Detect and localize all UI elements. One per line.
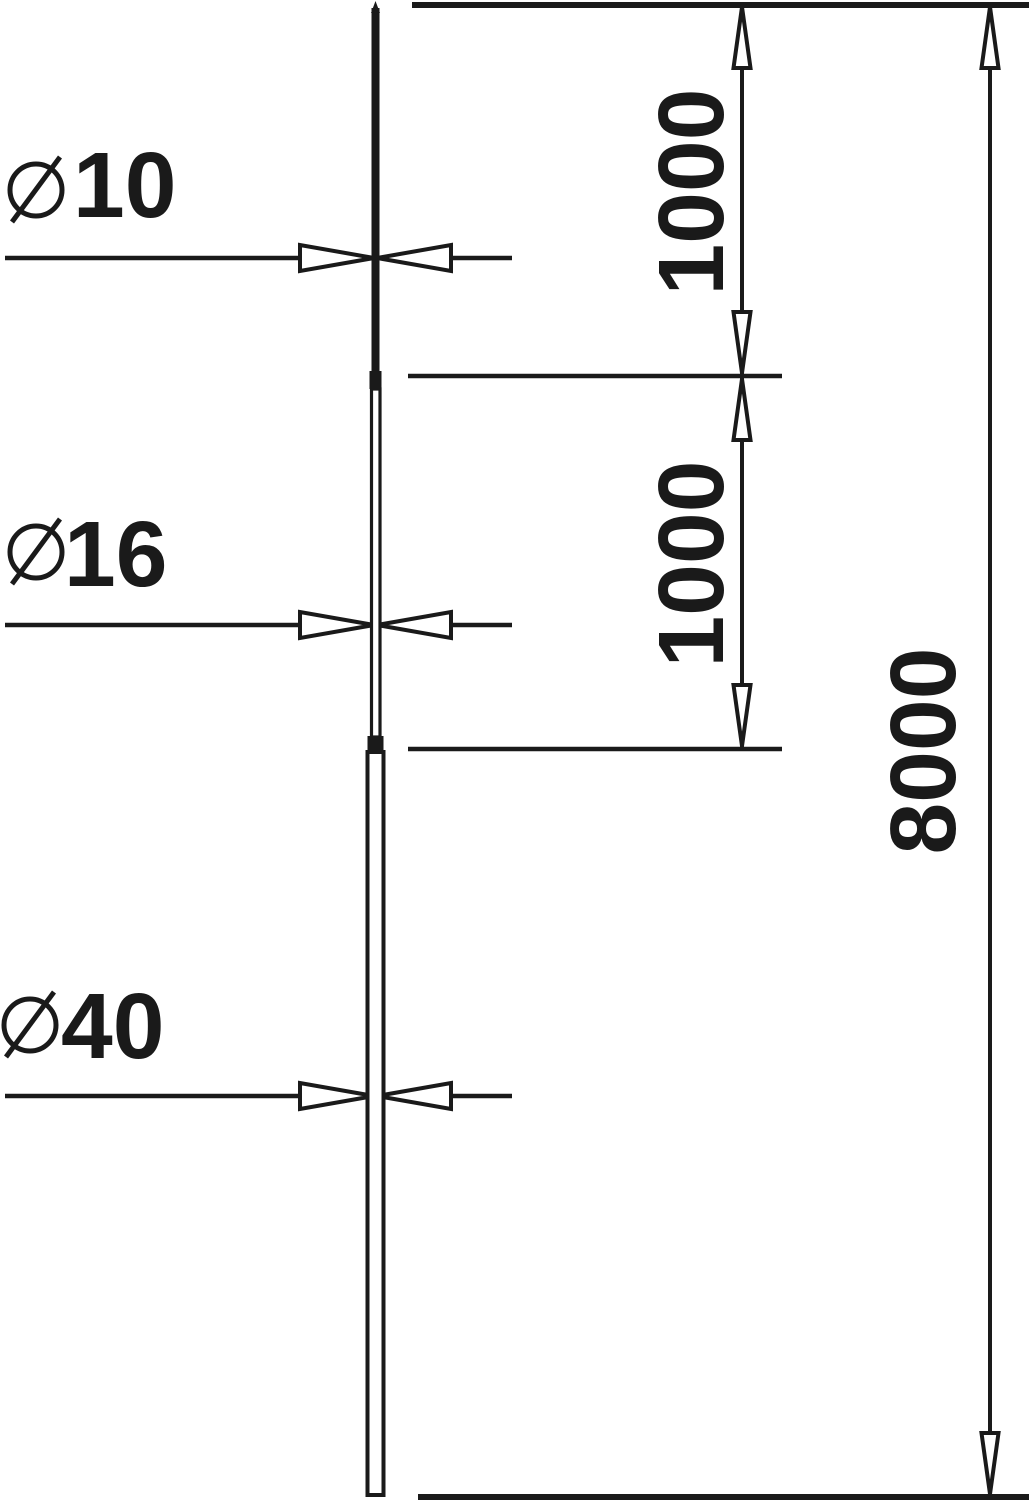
dia16-symbol-icon bbox=[10, 519, 62, 584]
dia40-arrow-left-icon bbox=[377, 1083, 451, 1109]
dia10-callout: 10 bbox=[5, 133, 512, 271]
dia10-arrow-left-icon bbox=[377, 245, 451, 271]
rod-section-dia40 bbox=[368, 752, 384, 1495]
dia16-callout: 16 bbox=[5, 502, 512, 638]
dia40-arrow-right-icon bbox=[300, 1083, 374, 1109]
dia40-value: 40 bbox=[61, 974, 164, 1078]
segment1-arrow-up-icon bbox=[734, 7, 751, 68]
rod-coupler-lower bbox=[368, 736, 384, 752]
rod bbox=[368, 1, 384, 1495]
drawing-stage: 10 16 40 1000 1000 8000 bbox=[0, 0, 1029, 1500]
dia40-symbol-icon bbox=[4, 992, 56, 1057]
dia10-value: 10 bbox=[73, 133, 176, 237]
total-arrow-down-icon bbox=[982, 1433, 999, 1494]
segment1-length-label: 1000 bbox=[639, 89, 743, 296]
technical-drawing: 10 16 40 1000 1000 8000 bbox=[0, 0, 1029, 1500]
rod-section-dia10 bbox=[372, 8, 380, 372]
dia40-callout: 40 bbox=[4, 974, 512, 1109]
segment2-length-label: 1000 bbox=[639, 461, 743, 668]
segment2-arrow-down-icon bbox=[734, 685, 751, 746]
rod-coupler-upper bbox=[370, 371, 382, 389]
segment1-arrow-down-icon bbox=[734, 312, 751, 373]
total-arrow-up-icon bbox=[982, 7, 999, 68]
dia16-arrow-right-icon bbox=[300, 612, 374, 638]
dia10-arrow-right-icon bbox=[300, 245, 374, 271]
dia16-arrow-left-icon bbox=[377, 612, 451, 638]
dia10-symbol-icon bbox=[10, 157, 62, 222]
segment2-arrow-up-icon bbox=[734, 379, 751, 440]
total-length-label: 8000 bbox=[871, 648, 975, 855]
rod-section-dia16 bbox=[372, 389, 381, 737]
dia16-value: 16 bbox=[64, 502, 167, 606]
